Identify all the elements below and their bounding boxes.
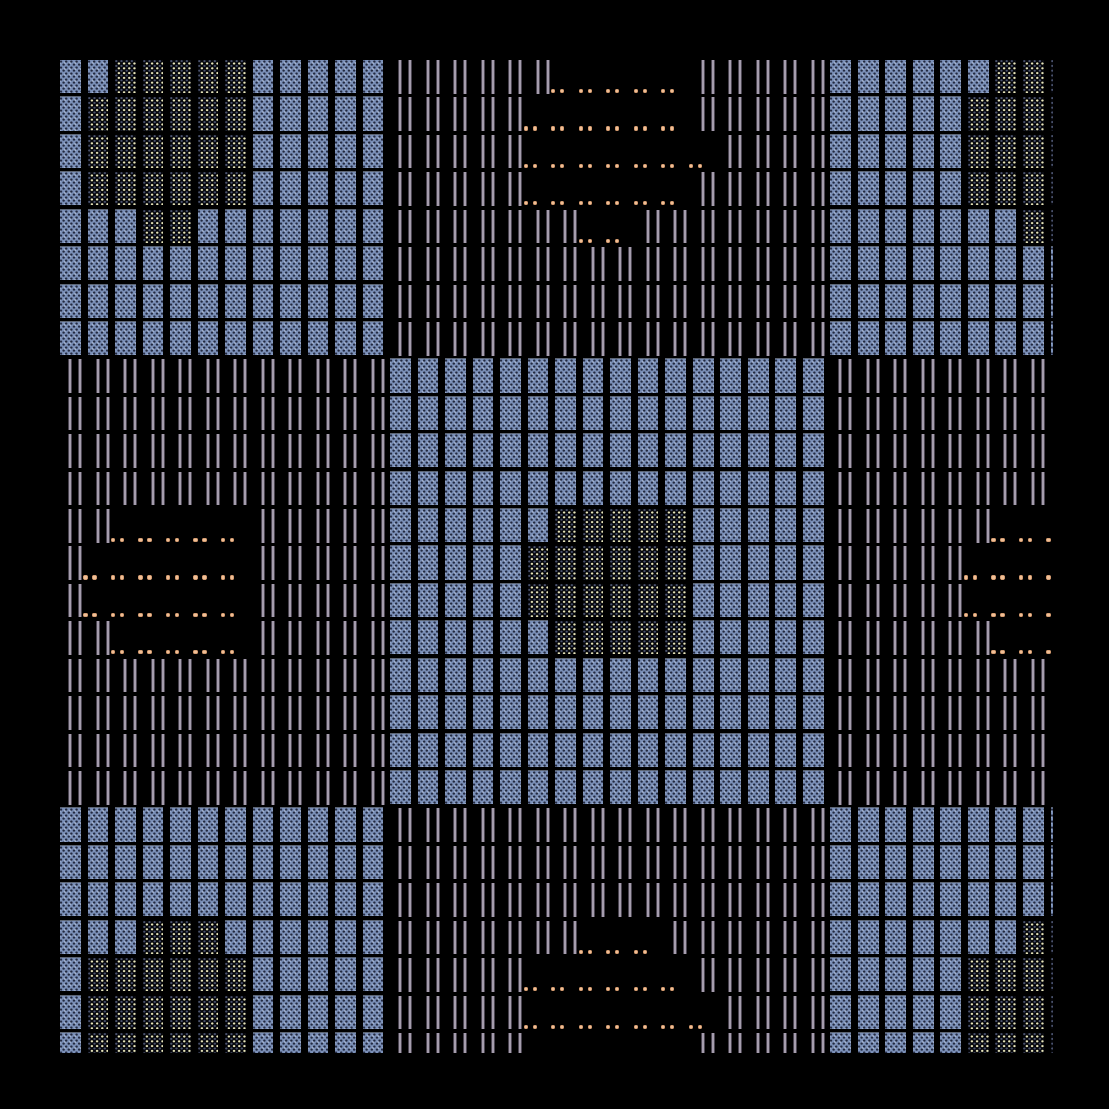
tile-woven-blue-block bbox=[390, 621, 411, 654]
tile-double-vertical-lines bbox=[445, 247, 468, 281]
tile-woven-blue-block bbox=[88, 210, 109, 243]
tile-dotted-cream-block bbox=[1023, 1033, 1044, 1053]
tile-woven-blue-block bbox=[693, 546, 714, 579]
tile-dotted-cream-block bbox=[968, 135, 989, 168]
tile-double-vertical-lines bbox=[88, 621, 111, 655]
tile-double-vertical-lines bbox=[445, 958, 468, 992]
tile-woven-blue-block bbox=[830, 172, 851, 205]
tile-woven-blue-block bbox=[500, 771, 521, 804]
tile-woven-blue-block bbox=[638, 472, 659, 505]
tile-double-vertical-lines bbox=[418, 172, 441, 206]
tile-woven-blue-block bbox=[445, 659, 466, 692]
tile-woven-blue-block bbox=[995, 322, 1016, 355]
tile-double-vertical-lines bbox=[418, 210, 441, 244]
tile-woven-blue-block bbox=[858, 1033, 879, 1053]
tile-double-vertical-lines bbox=[830, 771, 853, 805]
tile-double-vertical-lines bbox=[390, 210, 413, 244]
orange-dot bbox=[615, 164, 619, 168]
tile-double-vertical-lines bbox=[363, 659, 386, 693]
orange-dot bbox=[138, 538, 142, 542]
tile-woven-blue-block bbox=[858, 172, 879, 205]
tile-woven-blue-block bbox=[225, 285, 246, 318]
tile-double-vertical-lines bbox=[803, 1033, 826, 1053]
tile-woven-blue-block bbox=[390, 659, 411, 692]
orange-dot bbox=[606, 1025, 610, 1029]
tile-woven-blue-block bbox=[555, 696, 576, 729]
tile-double-vertical-lines bbox=[308, 472, 331, 506]
tile-double-vertical-lines bbox=[390, 846, 413, 880]
tile-double-vertical-lines bbox=[968, 359, 991, 393]
orange-dot bbox=[193, 613, 197, 617]
orange-dot bbox=[166, 538, 170, 542]
tile-double-vertical-lines bbox=[693, 172, 716, 206]
tile-woven-blue-block bbox=[280, 135, 301, 168]
orange-dot bbox=[579, 201, 583, 205]
orange-dot bbox=[1000, 650, 1004, 654]
tile-double-vertical-lines bbox=[748, 172, 771, 206]
tile-dotted-cream-block bbox=[170, 1033, 191, 1053]
tile-double-vertical-lines bbox=[885, 472, 908, 506]
tile-woven-blue-block bbox=[60, 97, 81, 130]
tile-double-vertical-lines bbox=[830, 734, 853, 768]
tile-woven-blue-block bbox=[445, 472, 466, 505]
tile-woven-blue-block bbox=[968, 60, 989, 93]
tile-woven-blue-block bbox=[913, 958, 934, 991]
tile-woven-blue-block bbox=[775, 546, 796, 579]
tile-dotted-cream-block bbox=[225, 1033, 246, 1053]
tile-double-vertical-lines bbox=[418, 996, 441, 1030]
tile-double-vertical-lines bbox=[913, 434, 936, 468]
orange-dot bbox=[193, 650, 197, 654]
tile-woven-blue-block bbox=[115, 921, 136, 954]
tile-double-vertical-lines bbox=[280, 434, 303, 468]
tile-woven-blue-block bbox=[418, 734, 439, 767]
tile-double-vertical-lines bbox=[88, 359, 111, 393]
tile-woven-blue-block bbox=[940, 808, 961, 841]
tile-woven-blue-block bbox=[115, 247, 136, 280]
tile-double-vertical-lines bbox=[418, 247, 441, 281]
tile-dotted-cream-block bbox=[170, 210, 191, 243]
tile-double-vertical-lines bbox=[720, 247, 743, 281]
tile-dotted-cream-block bbox=[115, 996, 136, 1029]
tile-dotted-cream-block bbox=[995, 996, 1016, 1029]
tile-double-vertical-lines bbox=[88, 434, 111, 468]
tile-double-vertical-lines bbox=[500, 60, 523, 94]
tile-double-vertical-lines bbox=[390, 996, 413, 1030]
orange-dot bbox=[1046, 613, 1050, 617]
tile-woven-blue-block bbox=[803, 734, 824, 767]
tile-double-vertical-lines bbox=[308, 397, 331, 431]
tile-double-vertical-lines bbox=[115, 696, 138, 730]
tile-double-vertical-lines bbox=[335, 546, 358, 580]
tile-double-vertical-lines bbox=[1023, 659, 1046, 693]
orange-dot bbox=[615, 201, 619, 205]
tile-double-vertical-lines bbox=[885, 696, 908, 730]
tile-woven-blue-block bbox=[280, 322, 301, 355]
tile-dotted-cream-block bbox=[143, 996, 164, 1029]
tile-woven-blue-block bbox=[363, 808, 384, 841]
tile-double-vertical-lines bbox=[60, 434, 83, 468]
tile-woven-blue-block bbox=[940, 247, 961, 280]
tile-woven-blue-block bbox=[60, 322, 81, 355]
tile-double-vertical-lines bbox=[610, 247, 633, 281]
tile-dotted-cream-block bbox=[1051, 921, 1054, 954]
orange-dot bbox=[606, 89, 610, 93]
tile-woven-blue-block bbox=[170, 846, 191, 879]
orange-dot bbox=[560, 987, 564, 991]
tile-double-vertical-lines bbox=[473, 1033, 496, 1053]
tile-woven-blue-block bbox=[528, 696, 549, 729]
tile-double-vertical-lines bbox=[280, 509, 303, 543]
tile-woven-blue-block bbox=[308, 921, 329, 954]
tile-double-vertical-lines bbox=[720, 846, 743, 880]
tile-double-vertical-lines bbox=[858, 659, 881, 693]
tile-woven-blue-block bbox=[473, 509, 494, 542]
tile-double-vertical-lines bbox=[473, 808, 496, 842]
tile-double-vertical-lines bbox=[143, 472, 166, 506]
tile-dotted-cream-block bbox=[170, 996, 191, 1029]
tile-double-vertical-lines bbox=[170, 472, 193, 506]
tile-double-vertical-lines bbox=[418, 60, 441, 94]
tile-double-vertical-lines bbox=[775, 883, 798, 917]
tile-woven-blue-block bbox=[418, 696, 439, 729]
tile-woven-blue-block bbox=[60, 958, 81, 991]
orange-dot bbox=[661, 987, 665, 991]
tile-woven-blue-block bbox=[1051, 247, 1054, 280]
tile-double-vertical-lines bbox=[940, 659, 963, 693]
tile-double-vertical-lines bbox=[830, 509, 853, 543]
tile-woven-blue-block bbox=[885, 135, 906, 168]
tile-double-vertical-lines bbox=[198, 734, 221, 768]
tile-woven-blue-block bbox=[445, 771, 466, 804]
orange-dot bbox=[615, 89, 619, 93]
tile-dotted-cream-block bbox=[170, 135, 191, 168]
tile-woven-blue-block bbox=[280, 846, 301, 879]
orange-dot bbox=[1019, 650, 1023, 654]
tile-woven-blue-block bbox=[748, 397, 769, 430]
tile-woven-blue-block bbox=[500, 584, 521, 617]
tile-woven-blue-block bbox=[858, 808, 879, 841]
tile-double-vertical-lines bbox=[280, 472, 303, 506]
tile-woven-blue-block bbox=[115, 210, 136, 243]
tile-woven-blue-block bbox=[748, 659, 769, 692]
tile-dotted-cream-block bbox=[88, 97, 109, 130]
orange-dot bbox=[524, 164, 528, 168]
orange-dot bbox=[634, 164, 638, 168]
tile-dotted-cream-block bbox=[1023, 135, 1044, 168]
tile-woven-blue-block bbox=[390, 546, 411, 579]
orange-dot bbox=[661, 89, 665, 93]
tile-woven-blue-block bbox=[858, 921, 879, 954]
tile-woven-blue-block bbox=[88, 247, 109, 280]
tile-woven-blue-block bbox=[418, 584, 439, 617]
tile-woven-blue-block bbox=[445, 584, 466, 617]
tile-dotted-cream-block bbox=[610, 584, 631, 617]
tile-double-vertical-lines bbox=[693, 1033, 716, 1053]
tile-woven-blue-block bbox=[473, 472, 494, 505]
tile-double-vertical-lines bbox=[665, 247, 688, 281]
tile-woven-blue-block bbox=[748, 734, 769, 767]
tile-double-vertical-lines bbox=[60, 359, 83, 393]
tile-double-vertical-lines bbox=[335, 659, 358, 693]
tile-woven-blue-block bbox=[913, 846, 934, 879]
tile-dotted-cream-block bbox=[198, 958, 219, 991]
tile-woven-blue-block bbox=[363, 247, 384, 280]
tile-double-vertical-lines bbox=[143, 397, 166, 431]
tile-woven-blue-block bbox=[885, 996, 906, 1029]
tile-woven-blue-block bbox=[280, 958, 301, 991]
tile-double-vertical-lines bbox=[968, 771, 991, 805]
orange-dot bbox=[111, 538, 115, 542]
tile-double-vertical-lines bbox=[885, 359, 908, 393]
tile-double-vertical-lines bbox=[1051, 359, 1054, 393]
tile-double-vertical-lines bbox=[500, 210, 523, 244]
tile-woven-blue-block bbox=[858, 97, 879, 130]
tile-woven-blue-block bbox=[528, 771, 549, 804]
tile-double-vertical-lines bbox=[335, 621, 358, 655]
tile-woven-blue-block bbox=[335, 210, 356, 243]
tile-double-vertical-lines bbox=[1023, 696, 1046, 730]
tile-double-vertical-lines bbox=[940, 584, 963, 618]
tile-dotted-cream-block bbox=[1023, 958, 1044, 991]
tile-woven-blue-block bbox=[775, 696, 796, 729]
tile-double-vertical-lines bbox=[88, 696, 111, 730]
tile-double-vertical-lines bbox=[280, 397, 303, 431]
tile-woven-blue-block bbox=[720, 771, 741, 804]
tile-woven-blue-block bbox=[60, 135, 81, 168]
tile-dotted-cream-block bbox=[555, 621, 576, 654]
tile-woven-blue-block bbox=[968, 883, 989, 916]
tile-woven-blue-block bbox=[610, 434, 631, 467]
tile-woven-blue-block bbox=[308, 1033, 329, 1053]
tile-woven-blue-block bbox=[885, 247, 906, 280]
tile-double-vertical-lines bbox=[583, 883, 606, 917]
orange-dot bbox=[147, 650, 151, 654]
orange-dot bbox=[606, 201, 610, 205]
tile-double-vertical-lines bbox=[748, 97, 771, 131]
tile-dotted-cream-block bbox=[170, 60, 191, 93]
tile-woven-blue-block bbox=[500, 734, 521, 767]
orange-dot bbox=[524, 126, 528, 130]
orange-dot bbox=[1019, 575, 1023, 579]
tile-double-vertical-lines bbox=[803, 97, 826, 131]
tile-double-vertical-lines bbox=[830, 546, 853, 580]
orange-dot bbox=[560, 126, 564, 130]
tile-dotted-cream-block bbox=[610, 509, 631, 542]
tile-woven-blue-block bbox=[473, 434, 494, 467]
tile-dotted-cream-block bbox=[665, 546, 686, 579]
tile-woven-blue-block bbox=[418, 771, 439, 804]
orange-dot bbox=[1046, 538, 1050, 542]
tile-woven-blue-block bbox=[858, 996, 879, 1029]
tile-woven-blue-block bbox=[473, 397, 494, 430]
orange-dot bbox=[221, 538, 225, 542]
tile-woven-blue-block bbox=[748, 434, 769, 467]
tile-double-vertical-lines bbox=[830, 397, 853, 431]
tile-woven-blue-block bbox=[418, 546, 439, 579]
tile-double-vertical-lines bbox=[830, 584, 853, 618]
tile-dotted-cream-block bbox=[225, 996, 246, 1029]
tile-woven-blue-block bbox=[253, 921, 274, 954]
tile-woven-blue-block bbox=[913, 921, 934, 954]
orange-dot bbox=[551, 201, 555, 205]
tile-double-vertical-lines bbox=[665, 846, 688, 880]
tile-double-vertical-lines bbox=[170, 434, 193, 468]
tile-double-vertical-lines bbox=[528, 808, 551, 842]
tile-double-vertical-lines bbox=[253, 696, 276, 730]
tile-double-vertical-lines bbox=[253, 659, 276, 693]
tile-dotted-cream-block bbox=[1051, 135, 1054, 168]
tile-double-vertical-lines bbox=[803, 285, 826, 319]
tile-double-vertical-lines bbox=[473, 958, 496, 992]
tile-woven-blue-block bbox=[335, 97, 356, 130]
tile-woven-blue-block bbox=[280, 1033, 301, 1053]
tile-double-vertical-lines bbox=[885, 734, 908, 768]
tile-dotted-cream-block bbox=[198, 60, 219, 93]
tile-woven-blue-block bbox=[170, 322, 191, 355]
orange-dot bbox=[661, 126, 665, 130]
tile-woven-blue-block bbox=[968, 285, 989, 318]
tile-woven-blue-block bbox=[390, 584, 411, 617]
tile-woven-blue-block bbox=[528, 621, 549, 654]
tile-double-vertical-lines bbox=[940, 434, 963, 468]
tile-double-vertical-lines bbox=[253, 734, 276, 768]
orange-dot bbox=[588, 239, 592, 243]
orange-dot bbox=[1046, 575, 1050, 579]
tile-woven-blue-block bbox=[390, 771, 411, 804]
tile-double-vertical-lines bbox=[775, 210, 798, 244]
tile-double-vertical-lines bbox=[60, 397, 83, 431]
tile-dotted-cream-block bbox=[170, 97, 191, 130]
tile-double-vertical-lines bbox=[693, 846, 716, 880]
tile-double-vertical-lines bbox=[528, 921, 551, 955]
tile-double-vertical-lines bbox=[500, 958, 523, 992]
tile-woven-blue-block bbox=[308, 883, 329, 916]
orange-dot bbox=[1028, 650, 1032, 654]
tile-double-vertical-lines bbox=[610, 808, 633, 842]
orange-dot bbox=[643, 164, 647, 168]
orange-dot bbox=[533, 987, 537, 991]
tile-dotted-cream-block bbox=[115, 97, 136, 130]
orange-dot bbox=[111, 613, 115, 617]
tile-woven-blue-block bbox=[253, 97, 274, 130]
tile-woven-blue-block bbox=[693, 771, 714, 804]
tile-double-vertical-lines bbox=[803, 172, 826, 206]
tile-woven-blue-block bbox=[363, 285, 384, 318]
tile-double-vertical-lines bbox=[830, 621, 853, 655]
tile-double-vertical-lines bbox=[693, 285, 716, 319]
tile-double-vertical-lines bbox=[500, 808, 523, 842]
orange-dot bbox=[120, 538, 124, 542]
orange-dot bbox=[551, 126, 555, 130]
orange-dot bbox=[588, 126, 592, 130]
tile-woven-blue-block bbox=[115, 322, 136, 355]
tile-woven-blue-block bbox=[610, 696, 631, 729]
tile-double-vertical-lines bbox=[720, 808, 743, 842]
tile-double-vertical-lines bbox=[363, 771, 386, 805]
tile-woven-blue-block bbox=[693, 509, 714, 542]
tile-double-vertical-lines bbox=[473, 285, 496, 319]
tile-double-vertical-lines bbox=[858, 397, 881, 431]
tile-dotted-cream-block bbox=[1023, 210, 1044, 243]
tile-woven-blue-block bbox=[390, 434, 411, 467]
tile-double-vertical-lines bbox=[445, 1033, 468, 1053]
tile-woven-blue-block bbox=[555, 771, 576, 804]
tile-woven-blue-block bbox=[198, 846, 219, 879]
tile-double-vertical-lines bbox=[995, 734, 1018, 768]
tile-woven-blue-block bbox=[693, 472, 714, 505]
tile-double-vertical-lines bbox=[170, 659, 193, 693]
tile-dotted-cream-block bbox=[1023, 60, 1044, 93]
tile-double-vertical-lines bbox=[583, 846, 606, 880]
tile-woven-blue-block bbox=[830, 1033, 851, 1053]
tile-woven-blue-block bbox=[335, 322, 356, 355]
tile-double-vertical-lines bbox=[115, 472, 138, 506]
orange-dot bbox=[166, 650, 170, 654]
tile-woven-blue-block bbox=[665, 659, 686, 692]
orange-dot bbox=[670, 1025, 674, 1029]
tile-dotted-cream-block bbox=[638, 546, 659, 579]
tile-double-vertical-lines bbox=[418, 285, 441, 319]
tile-double-vertical-lines bbox=[280, 546, 303, 580]
tile-double-vertical-lines bbox=[1051, 696, 1054, 730]
tile-woven-blue-block bbox=[88, 60, 109, 93]
tile-double-vertical-lines bbox=[473, 247, 496, 281]
tile-woven-blue-block bbox=[170, 247, 191, 280]
tile-woven-blue-block bbox=[60, 1033, 81, 1053]
tile-dotted-cream-block bbox=[995, 97, 1016, 130]
tile-double-vertical-lines bbox=[1023, 397, 1046, 431]
tile-double-vertical-lines bbox=[665, 921, 688, 955]
tile-woven-blue-block bbox=[1051, 846, 1054, 879]
tile-double-vertical-lines bbox=[528, 210, 551, 244]
orange-dot bbox=[1000, 538, 1004, 542]
orange-dot bbox=[193, 575, 197, 579]
orange-dot bbox=[1000, 613, 1004, 617]
tile-woven-blue-block bbox=[473, 771, 494, 804]
tile-double-vertical-lines bbox=[308, 546, 331, 580]
tile-double-vertical-lines bbox=[995, 359, 1018, 393]
tile-double-vertical-lines bbox=[1023, 359, 1046, 393]
tile-double-vertical-lines bbox=[473, 322, 496, 356]
tile-double-vertical-lines bbox=[500, 322, 523, 356]
orange-dot bbox=[991, 613, 995, 617]
tile-dotted-cream-block bbox=[555, 509, 576, 542]
tile-double-vertical-lines bbox=[1023, 771, 1046, 805]
tile-double-vertical-lines bbox=[995, 472, 1018, 506]
orange-dot bbox=[166, 575, 170, 579]
orange-dot bbox=[533, 164, 537, 168]
tile-double-vertical-lines bbox=[390, 322, 413, 356]
tile-double-vertical-lines bbox=[1051, 771, 1054, 805]
orange-dot bbox=[92, 613, 96, 617]
tile-double-vertical-lines bbox=[720, 210, 743, 244]
tile-woven-blue-block bbox=[60, 60, 81, 93]
orange-dot bbox=[588, 201, 592, 205]
tile-double-vertical-lines bbox=[803, 247, 826, 281]
tile-double-vertical-lines bbox=[445, 322, 468, 356]
tile-double-vertical-lines bbox=[390, 285, 413, 319]
tile-double-vertical-lines bbox=[500, 846, 523, 880]
tile-double-vertical-lines bbox=[858, 509, 881, 543]
tile-double-vertical-lines bbox=[913, 584, 936, 618]
tile-dotted-cream-block bbox=[88, 135, 109, 168]
tile-woven-blue-block bbox=[390, 696, 411, 729]
tile-double-vertical-lines bbox=[280, 734, 303, 768]
tile-dotted-cream-block bbox=[143, 921, 164, 954]
tile-woven-blue-block bbox=[253, 172, 274, 205]
tile-woven-blue-block bbox=[335, 172, 356, 205]
